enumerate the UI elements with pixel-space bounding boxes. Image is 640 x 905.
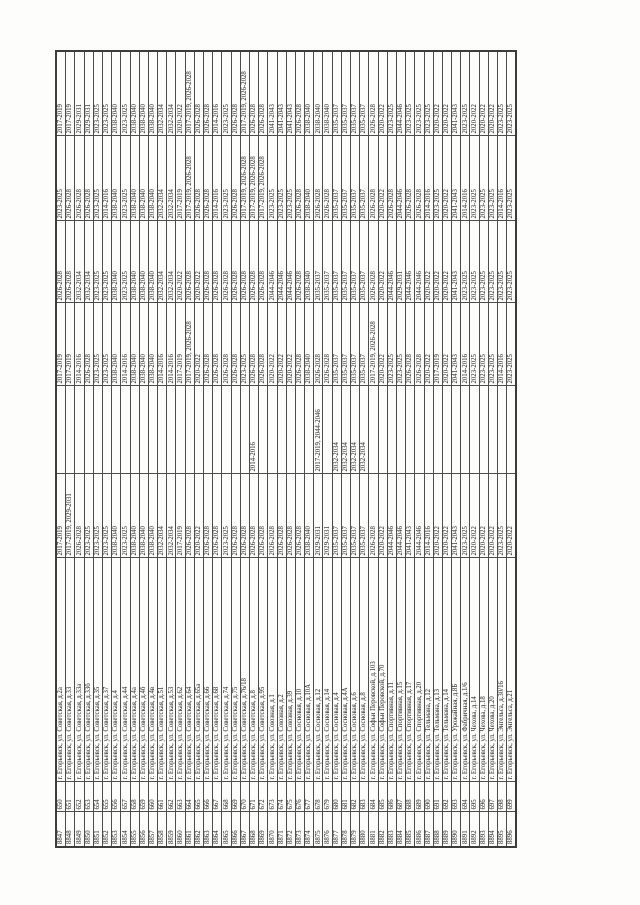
period-cell-2: 2032-2034 <box>351 386 360 474</box>
table-row: 8865668г. Егорьевск, ул. Советская, д.74… <box>222 51 231 847</box>
period-cell-5: 2023-2025 <box>507 136 517 221</box>
period-cell-6: 2017-2019, 2026-2028 <box>185 51 194 136</box>
period-cell-5: 2038-2040 <box>130 136 139 221</box>
period-cell-3: 2017-2019, 2026-2028 <box>369 303 378 386</box>
period-cell-4: 2020-2022 <box>176 221 185 303</box>
address-cell: г. Егорьевск, ул. Чехова, д.18 <box>479 558 488 782</box>
period-cell-5: 2038-2040 <box>139 136 148 221</box>
period-cell-2 <box>240 386 249 474</box>
period-cell-5: 2026-2028 <box>369 136 378 221</box>
period-cell-6: 2020-2022 <box>479 51 488 136</box>
item-number-cell: 657 <box>121 782 130 812</box>
period-cell-5: 2026-2028 <box>194 136 203 221</box>
table-row: 8859662г. Егорьевск, ул. Советская, д.53… <box>167 51 176 847</box>
period-cell-2 <box>259 386 268 474</box>
period-cell-6: 2038-2040 <box>130 51 139 136</box>
table-row: 8863666г. Егорьевск, ул. Советская, д.66… <box>204 51 213 847</box>
period-cell-5: 2014-2016 <box>461 136 470 221</box>
table-row: 8869672г. Егорьевск, ул. Советская, д.95… <box>259 51 268 847</box>
address-cell: г. Егорьевск, ул. Чехова, д.20 <box>488 558 497 782</box>
period-cell-4: 2038-2040 <box>148 221 157 303</box>
address-cell: г. Егорьевск, ул. Сосновая, д.6 <box>351 558 360 782</box>
period-cell-4: 2026-2028 <box>213 221 222 303</box>
address-cell: г. Егорьевск, ул. Советская, д.76/18 <box>240 558 249 782</box>
table-row: 8871674г. Егорьевск, ул. Союзная, д.2202… <box>277 51 286 847</box>
period-cell-5: 2017-2019, 2026-2028 <box>249 136 258 221</box>
address-cell: г. Егорьевск, ул. Советская, д.51 <box>158 558 167 782</box>
period-cell-2 <box>194 386 203 474</box>
row-number-cell: 8896 <box>507 812 517 847</box>
period-cell-6: 2017-2019, 2026-2028 <box>240 51 249 136</box>
period-cell-2 <box>102 386 111 474</box>
period-cell-1: 2023-2025 <box>121 474 130 558</box>
row-number-cell: 8874 <box>305 812 314 847</box>
row-number-cell: 8888 <box>433 812 442 847</box>
period-cell-6: 2032-2034 <box>167 51 176 136</box>
address-cell: г. Егорьевск, ул. Советская, д.53 <box>167 558 176 782</box>
period-cell-5: 2035-2037 <box>351 136 360 221</box>
period-cell-3: 2026-2028 <box>415 303 424 386</box>
period-cell-4: 2023-2025 <box>479 221 488 303</box>
period-cell-3: 2017-2019 <box>433 303 442 386</box>
period-cell-3: 2023-2025 <box>240 303 249 386</box>
item-number-cell: 679 <box>323 782 332 812</box>
period-cell-4: 2023-2025 <box>121 221 130 303</box>
period-cell-5: 2023-2025 <box>222 136 231 221</box>
period-cell-2 <box>56 386 66 474</box>
period-cell-5: 2020-2022 <box>442 136 451 221</box>
period-cell-2 <box>121 386 130 474</box>
period-cell-4: 2032-2034 <box>84 221 93 303</box>
table-row: 8889692г. Егорьевск, ул. Тельмана, д.142… <box>442 51 451 847</box>
address-cell: г. Егорьевск, ул. Сосновая, д.10А <box>305 558 314 782</box>
period-cell-2: 2032-2034 <box>332 386 341 474</box>
address-cell: г. Егорьевск, ул. Советская, д.35 <box>93 558 102 782</box>
period-cell-1: 2017-2019, 2029-2031 <box>66 474 75 558</box>
period-cell-3: 2020-2022 <box>277 303 286 386</box>
period-cell-3: 2023-2025 <box>507 303 517 386</box>
period-cell-4: 2023-2025 <box>507 221 517 303</box>
table-row: 8851654г. Егорьевск, ул. Советская, д.35… <box>93 51 102 847</box>
period-cell-2 <box>415 386 424 474</box>
period-cell-5: 2023-2025 <box>93 136 102 221</box>
period-cell-1: 2032-2034 <box>167 474 176 558</box>
period-cell-5: 2014-2016 <box>498 136 507 221</box>
item-number-cell: 687 <box>396 782 405 812</box>
period-cell-2 <box>470 386 479 474</box>
row-number-cell: 8883 <box>387 812 396 847</box>
table-row: 8888691г. Егорьевск, ул. Тельмана, д.132… <box>433 51 442 847</box>
period-cell-3: 2014-2016 <box>75 303 84 386</box>
schedule-table: 8847650г. Егорьевск, ул. Советская, д.2а… <box>55 50 517 848</box>
period-cell-4: 2044-2046 <box>406 221 415 303</box>
address-cell: г. Егорьевск, ул. Советская, д.37 <box>102 558 111 782</box>
address-cell: г. Егорьевск, ул. Софьи Перовской, д.70 <box>378 558 387 782</box>
period-cell-3: 2035-2037 <box>351 303 360 386</box>
period-cell-1: 2023-2025 <box>102 474 111 558</box>
item-number-cell: 691 <box>433 782 442 812</box>
table-row: 8886689г. Егорьевск, ул. Спортивная, д.2… <box>415 51 424 847</box>
period-cell-2 <box>130 386 139 474</box>
table-row: 8894697г. Егорьевск, ул. Чехова, д.20202… <box>488 51 497 847</box>
item-number-cell: 663 <box>176 782 185 812</box>
period-cell-4: 2023-2025 <box>102 221 111 303</box>
period-cell-2 <box>387 386 396 474</box>
period-cell-6: 2044-2046 <box>396 51 405 136</box>
period-cell-4: 2035-2037 <box>360 221 369 303</box>
period-cell-3: 2023-2025 <box>479 303 488 386</box>
period-cell-5: 2032-2034 <box>167 136 176 221</box>
address-cell: г. Егорьевск, ул. Союзная, д.39 <box>286 558 295 782</box>
period-cell-6: 2023-2025 <box>507 51 517 136</box>
period-cell-6: 2029-2031 <box>75 51 84 136</box>
period-cell-4: 2020-2022 <box>442 221 451 303</box>
period-cell-1: 2023-2025 <box>93 474 102 558</box>
table-row: 8852655г. Егорьевск, ул. Советская, д.37… <box>102 51 111 847</box>
period-cell-1: 2026-2028 <box>369 474 378 558</box>
item-number-cell: 653 <box>84 782 93 812</box>
period-cell-3: 2014-2016 <box>158 303 167 386</box>
period-cell-4: 2026-2028 <box>295 221 304 303</box>
table-row: 8864667г. Егорьевск, ул. Советская, д.68… <box>213 51 222 847</box>
period-cell-6: 2035-2037 <box>360 51 369 136</box>
period-cell-2 <box>452 386 461 474</box>
period-cell-1: 2023-2025 <box>84 474 93 558</box>
item-number-cell: 681 <box>341 782 350 812</box>
period-cell-1: 2044-2046 <box>396 474 405 558</box>
period-cell-1: 2038-2040 <box>148 474 157 558</box>
table-body: 8847650г. Егорьевск, ул. Советская, д.2а… <box>56 51 516 847</box>
item-number-cell: 654 <box>93 782 102 812</box>
address-cell: г. Егорьевск, ул. Спортивная, д.17 <box>406 558 415 782</box>
period-cell-4: 2023-2025 <box>93 221 102 303</box>
row-number-cell: 8864 <box>213 812 222 847</box>
table-row: 8855658г. Егорьевск, ул. Советская, д.4а… <box>130 51 139 847</box>
period-cell-5: 2044-2046 <box>396 136 405 221</box>
row-number-cell: 8895 <box>498 812 507 847</box>
period-cell-2 <box>112 386 121 474</box>
period-cell-6: 2041-2043 <box>268 51 277 136</box>
period-cell-6: 2032-2034 <box>158 51 167 136</box>
period-cell-5: 2026-2028 <box>204 136 213 221</box>
row-number-cell: 8850 <box>84 812 93 847</box>
table-row: 8880683г. Егорьевск, ул. Сосновая, д.820… <box>360 51 369 847</box>
period-cell-1: 2017-2019 <box>56 474 66 558</box>
period-cell-5: 2014-2016 <box>102 136 111 221</box>
row-number-cell: 8849 <box>75 812 84 847</box>
period-cell-1: 2044-2046 <box>387 474 396 558</box>
period-cell-1: 2041-2043 <box>452 474 461 558</box>
period-cell-2 <box>433 386 442 474</box>
row-number-cell: 8871 <box>277 812 286 847</box>
period-cell-6: 2023-2025 <box>461 51 470 136</box>
period-cell-5: 2026-2028 <box>66 136 75 221</box>
period-cell-6: 2017-2019 <box>66 51 75 136</box>
table-row: 8881684г. Егорьевск, ул. Софьи Перовской… <box>369 51 378 847</box>
item-number-cell: 668 <box>222 782 231 812</box>
table-row: 8893696г. Егорьевск, ул. Чехова, д.18202… <box>479 51 488 847</box>
period-cell-5: 2026-2028 <box>75 136 84 221</box>
period-cell-4: 2023-2025 <box>461 221 470 303</box>
period-cell-1: 2032-2034 <box>158 474 167 558</box>
table-row: 8878681г. Егорьевск, ул. Сосновая, д.4А2… <box>341 51 350 847</box>
row-number-cell: 8876 <box>323 812 332 847</box>
period-cell-5: 2014-2016 <box>213 136 222 221</box>
period-cell-4: 2026-2028 <box>259 221 268 303</box>
row-number-cell: 8879 <box>351 812 360 847</box>
period-cell-4: 2044-2046 <box>415 221 424 303</box>
period-cell-1: 2014-2016 <box>424 474 433 558</box>
item-number-cell: 685 <box>378 782 387 812</box>
period-cell-2 <box>222 386 231 474</box>
address-cell: г. Егорьевск, ул. Сосновая, д.10 <box>295 558 304 782</box>
period-cell-6: 2041-2043 <box>286 51 295 136</box>
period-cell-4: 2020-2022 <box>378 221 387 303</box>
period-cell-2 <box>158 386 167 474</box>
item-number-cell: 661 <box>158 782 167 812</box>
address-cell: г. Егорьевск, ул. Советская, д.65а <box>194 558 203 782</box>
item-number-cell: 693 <box>452 782 461 812</box>
period-cell-6: 2026-2028 <box>259 51 268 136</box>
scanned-page: 8847650г. Егорьевск, ул. Советская, д.2а… <box>0 0 640 905</box>
period-cell-5: 2041-2043 <box>452 136 461 221</box>
rotated-table-region: 8847650г. Егорьевск, ул. Советская, д.2а… <box>55 52 560 848</box>
row-number-cell: 8861 <box>185 812 194 847</box>
row-number-cell: 8886 <box>415 812 424 847</box>
row-number-cell: 8856 <box>139 812 148 847</box>
table-row: 8875678г. Егорьевск, ул. Сосновая, д.122… <box>314 51 323 847</box>
row-number-cell: 8870 <box>268 812 277 847</box>
period-cell-6: 2038-2040 <box>112 51 121 136</box>
period-cell-5: 2026-2028 <box>314 136 323 221</box>
period-cell-5: 2038-2040 <box>112 136 121 221</box>
table-row: 8872675г. Егорьевск, ул. Союзная, д.3920… <box>286 51 295 847</box>
address-cell: г. Егорьевск, ул. Сосновая, д.4 <box>332 558 341 782</box>
period-cell-4: 2038-2040 <box>130 221 139 303</box>
item-number-cell: 672 <box>259 782 268 812</box>
row-number-cell: 8853 <box>112 812 121 847</box>
period-cell-4: 2035-2037 <box>341 221 350 303</box>
period-cell-4: 2026-2028 <box>56 221 66 303</box>
row-number-cell: 8881 <box>369 812 378 847</box>
table-row: 8895698г. Егорьевск, ул. Энгельса, д.30/… <box>498 51 507 847</box>
address-cell: г. Егорьевск, ул. Советская, д.75 <box>231 558 240 782</box>
item-number-cell: 651 <box>66 782 75 812</box>
period-cell-4: 2038-2040 <box>139 221 148 303</box>
period-cell-5: 2023-2025 <box>433 136 442 221</box>
period-cell-3: 2038-2040 <box>148 303 157 386</box>
period-cell-1: 2023-2025 <box>222 474 231 558</box>
table-row: 8868671г. Егорьевск, ул. Советская, д.82… <box>249 51 258 847</box>
period-cell-1: 2026-2028 <box>185 474 194 558</box>
row-number-cell: 8867 <box>240 812 249 847</box>
row-number-cell: 8893 <box>479 812 488 847</box>
period-cell-2 <box>424 386 433 474</box>
item-number-cell: 680 <box>332 782 341 812</box>
period-cell-5: 2023-2025 <box>286 136 295 221</box>
period-cell-2: 2032-2034 <box>341 386 350 474</box>
item-number-cell: 662 <box>167 782 176 812</box>
period-cell-1: 2026-2028 <box>295 474 304 558</box>
period-cell-5: 2038-2040 <box>148 136 157 221</box>
table-row: 8879682г. Егорьевск, ул. Сосновая, д.620… <box>351 51 360 847</box>
period-cell-3: 2026-2028 <box>84 303 93 386</box>
item-number-cell: 688 <box>406 782 415 812</box>
period-cell-3: 2023-2025 <box>396 303 405 386</box>
row-number-cell: 8882 <box>378 812 387 847</box>
period-cell-4: 2026-2028 <box>369 221 378 303</box>
period-cell-6: 2035-2037 <box>351 51 360 136</box>
table-row: 8876679г. Егорьевск, ул. Сосновая, д.142… <box>323 51 332 847</box>
period-cell-4: 2038-2040 <box>305 221 314 303</box>
address-cell: г. Егорьевск, ул. Советская, д.33 <box>66 558 75 782</box>
period-cell-1: 2026-2028 <box>286 474 295 558</box>
table-row: 8873676г. Егорьевск, ул. Сосновая, д.102… <box>295 51 304 847</box>
period-cell-3: 2017-2019 <box>66 303 75 386</box>
period-cell-3: 2020-2022 <box>194 303 203 386</box>
table-row: 8850653г. Егорьевск, ул. Советская, д.33… <box>84 51 93 847</box>
period-cell-6: 2041-2043 <box>452 51 461 136</box>
period-cell-1: 2026-2028 <box>213 474 222 558</box>
period-cell-1: 2020-2022 <box>470 474 479 558</box>
period-cell-4: 2032-2034 <box>167 221 176 303</box>
address-cell: г. Егорьевск, ул. Советская, д.68 <box>213 558 222 782</box>
table-row: 8896699г. Егорьевск, ул. Энгельса, д.212… <box>507 51 517 847</box>
period-cell-6: 2035-2037 <box>332 51 341 136</box>
period-cell-5: 2023-2025 <box>488 136 497 221</box>
period-cell-3: 2017-2019 <box>56 303 66 386</box>
address-cell: г. Егорьевск, ул. Советская, д.66 <box>204 558 213 782</box>
period-cell-3: 2026-2028 <box>213 303 222 386</box>
period-cell-2 <box>66 386 75 474</box>
period-cell-3: 2026-2028 <box>249 303 258 386</box>
period-cell-3: 2035-2037 <box>360 303 369 386</box>
period-cell-4: 2029-2031 <box>396 221 405 303</box>
period-cell-1: 2038-2040 <box>139 474 148 558</box>
table-row: 8858661г. Егорьевск, ул. Советская, д.51… <box>158 51 167 847</box>
period-cell-3: 2038-2040 <box>130 303 139 386</box>
period-cell-1: 2026-2028 <box>277 474 286 558</box>
item-number-cell: 669 <box>231 782 240 812</box>
period-cell-4: 2023-2025 <box>498 221 507 303</box>
period-cell-4: 2038-2040 <box>112 221 121 303</box>
address-cell: г. Егорьевск, ул. Советская, д.4в <box>148 558 157 782</box>
period-cell-2 <box>479 386 488 474</box>
period-cell-1: 2023-2025 <box>461 474 470 558</box>
period-cell-6: 2020-2022 <box>488 51 497 136</box>
period-cell-5: 2032-2034 <box>158 136 167 221</box>
row-number-cell: 8857 <box>148 812 157 847</box>
period-cell-5: 2014-2016 <box>424 136 433 221</box>
period-cell-6: 2023-2025 <box>406 51 415 136</box>
row-number-cell: 8859 <box>167 812 176 847</box>
period-cell-3: 2014-2016 <box>121 303 130 386</box>
period-cell-3: 2020-2022 <box>378 303 387 386</box>
period-cell-3: 2026-2028 <box>231 303 240 386</box>
period-cell-2 <box>406 386 415 474</box>
period-cell-6: 2014-2016 <box>213 51 222 136</box>
period-cell-5: 2026-2028 <box>387 136 396 221</box>
item-number-cell: 696 <box>479 782 488 812</box>
row-number-cell: 8860 <box>176 812 185 847</box>
period-cell-1: 2020-2022 <box>442 474 451 558</box>
item-number-cell: 675 <box>286 782 295 812</box>
item-number-cell: 656 <box>112 782 121 812</box>
period-cell-6: 2038-2040 <box>305 51 314 136</box>
period-cell-2: 2014-2016 <box>249 386 258 474</box>
table-row: 8848651г. Егорьевск, ул. Советская, д.33… <box>66 51 75 847</box>
address-cell: г. Егорьевск, ул. Спортивная, д.15 <box>396 558 405 782</box>
item-number-cell: 665 <box>194 782 203 812</box>
item-number-cell: 658 <box>130 782 139 812</box>
period-cell-4: 2026-2028 <box>240 221 249 303</box>
address-cell: г. Егорьевск, ул. Советская, д.64 <box>185 558 194 782</box>
period-cell-6: 2023-2025 <box>415 51 424 136</box>
period-cell-6: 2023-2025 <box>93 51 102 136</box>
period-cell-2 <box>295 386 304 474</box>
period-cell-1: 2029-2031 <box>323 474 332 558</box>
address-cell: г. Егорьевск, ул. Сосновая, д.12 <box>314 558 323 782</box>
period-cell-4: 2044-2046 <box>286 221 295 303</box>
row-number-cell: 8863 <box>204 812 213 847</box>
table-row: 8890693г. Егорьевск, ул. Урожайная, д.8Б… <box>452 51 461 847</box>
period-cell-3: 2023-2025 <box>470 303 479 386</box>
period-cell-2 <box>323 386 332 474</box>
period-cell-6: 2026-2028 <box>204 51 213 136</box>
row-number-cell: 8877 <box>332 812 341 847</box>
period-cell-1: 2041-2043 <box>406 474 415 558</box>
period-cell-3: 2038-2040 <box>112 303 121 386</box>
period-cell-3: 2026-2028 <box>323 303 332 386</box>
period-cell-2 <box>204 386 213 474</box>
item-number-cell: 694 <box>461 782 470 812</box>
table-row: 8856659г. Егорьевск, ул. Советская, д.4б… <box>139 51 148 847</box>
period-cell-4: 2026-2028 <box>204 221 213 303</box>
item-number-cell: 684 <box>369 782 378 812</box>
period-cell-6: 2023-2025 <box>387 51 396 136</box>
period-cell-2: 2032-2034 <box>360 386 369 474</box>
address-cell: г. Егорьевск, ул. Советская, д.8 <box>249 558 258 782</box>
table-row: 8849652г. Егорьевск, ул. Советская, д.33… <box>75 51 84 847</box>
period-cell-3: 2014-2016 <box>167 303 176 386</box>
period-cell-5: 2023-2025 <box>121 136 130 221</box>
period-cell-1: 2020-2022 <box>378 474 387 558</box>
table-row: 8884687г. Егорьевск, ул. Спортивная, д.1… <box>396 51 405 847</box>
period-cell-4: 2041-2043 <box>452 221 461 303</box>
table-row: 8857660г. Егорьевск, ул. Советская, д.4в… <box>148 51 157 847</box>
period-cell-6: 2023-2025 <box>498 51 507 136</box>
period-cell-5: 2026-2028 <box>415 136 424 221</box>
period-cell-2 <box>75 386 84 474</box>
period-cell-1: 2044-2046 <box>415 474 424 558</box>
period-cell-4: 2026-2028 <box>231 221 240 303</box>
table-row: 8870673г. Егорьевск, ул. Союзная, д.1202… <box>268 51 277 847</box>
address-cell: г. Егорьевск, ул. Сосновая, д.4А <box>341 558 350 782</box>
item-number-cell: 652 <box>75 782 84 812</box>
period-cell-1: 2038-2040 <box>112 474 121 558</box>
period-cell-5: 2023-2025 <box>470 136 479 221</box>
period-cell-5: 2026-2028 <box>84 136 93 221</box>
period-cell-6: 2023-2025 <box>102 51 111 136</box>
table-row: 8892695г. Егорьевск, ул. Чехова, д.14202… <box>470 51 479 847</box>
period-cell-4: 2026-2028 <box>185 221 194 303</box>
period-cell-4: 2026-2028 <box>249 221 258 303</box>
period-cell-2 <box>442 386 451 474</box>
address-cell: г. Егорьевск, ул. Спортивная, д.11 <box>387 558 396 782</box>
table-row: 8883686г. Егорьевск, ул. Спортивная, д.1… <box>387 51 396 847</box>
table-row: 8862665г. Егорьевск, ул. Советская, д.65… <box>194 51 203 847</box>
address-cell: г. Егорьевск, ул. Фабричная, д.1/6 <box>461 558 470 782</box>
